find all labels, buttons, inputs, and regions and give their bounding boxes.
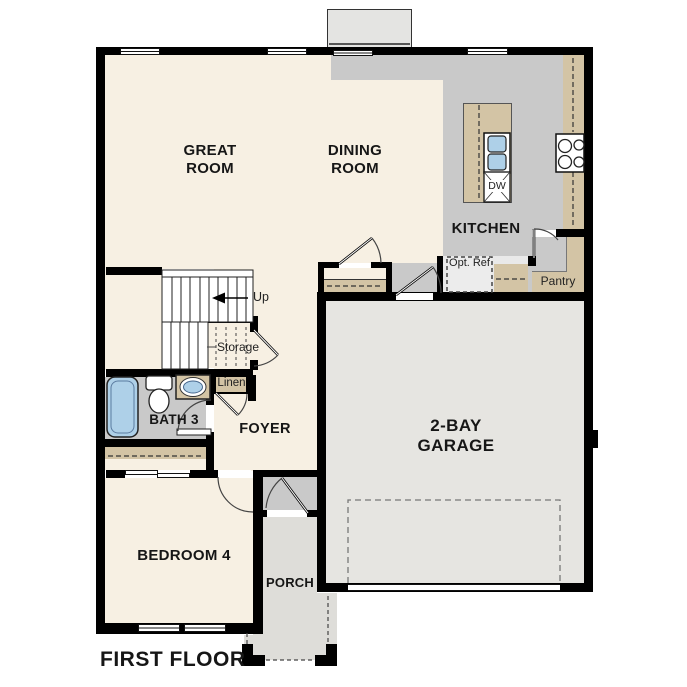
porch-edge-dashed xyxy=(247,596,328,660)
storage-label: Storage xyxy=(213,340,263,354)
bathtub xyxy=(107,377,138,437)
plan-symbols xyxy=(0,0,687,687)
dishwasher-label: DW xyxy=(485,180,509,192)
garage-entry-door-arc xyxy=(433,267,441,293)
linen-label: Linen xyxy=(214,377,249,389)
kitchen-label: KITCHEN xyxy=(436,220,536,237)
kitchen-sink xyxy=(484,133,510,173)
bath3-label: BATH 3 xyxy=(138,412,210,427)
bath3-door-leaf xyxy=(177,429,211,435)
floor-title: FIRST FLOOR xyxy=(100,648,246,672)
foyer-label: FOYER xyxy=(228,421,302,437)
opt-ref-label: Opt. Ref xyxy=(448,257,491,270)
bathroom-sink xyxy=(176,375,210,399)
great-room-label: GREAT ROOM xyxy=(158,142,262,177)
staircase xyxy=(162,270,253,369)
bedroom4-label: BEDROOM 4 xyxy=(118,547,250,564)
dishwasher-label-text: DW xyxy=(487,180,507,192)
pantry-label: Pantry xyxy=(529,274,587,288)
bedroom4-door-arc xyxy=(218,477,253,512)
cooktop xyxy=(556,134,584,172)
toilet xyxy=(146,376,172,413)
linen-door-arc xyxy=(238,394,247,415)
storage-door-arc xyxy=(254,355,278,366)
floor-plan: GREAT ROOM DINING ROOM KITCHEN 2-BAY GAR… xyxy=(0,0,687,687)
coat-closet-door-arc xyxy=(372,238,381,263)
garage-label: 2-BAY GARAGE xyxy=(404,416,508,456)
dining-room-label: DINING ROOM xyxy=(303,142,407,177)
pantry-door-arc xyxy=(534,229,558,240)
garage-door-track-dashed xyxy=(348,500,560,583)
porch-label: PORCH xyxy=(260,575,320,590)
front-door-arc xyxy=(266,478,282,508)
stairs-up-label: Up xyxy=(253,290,281,304)
